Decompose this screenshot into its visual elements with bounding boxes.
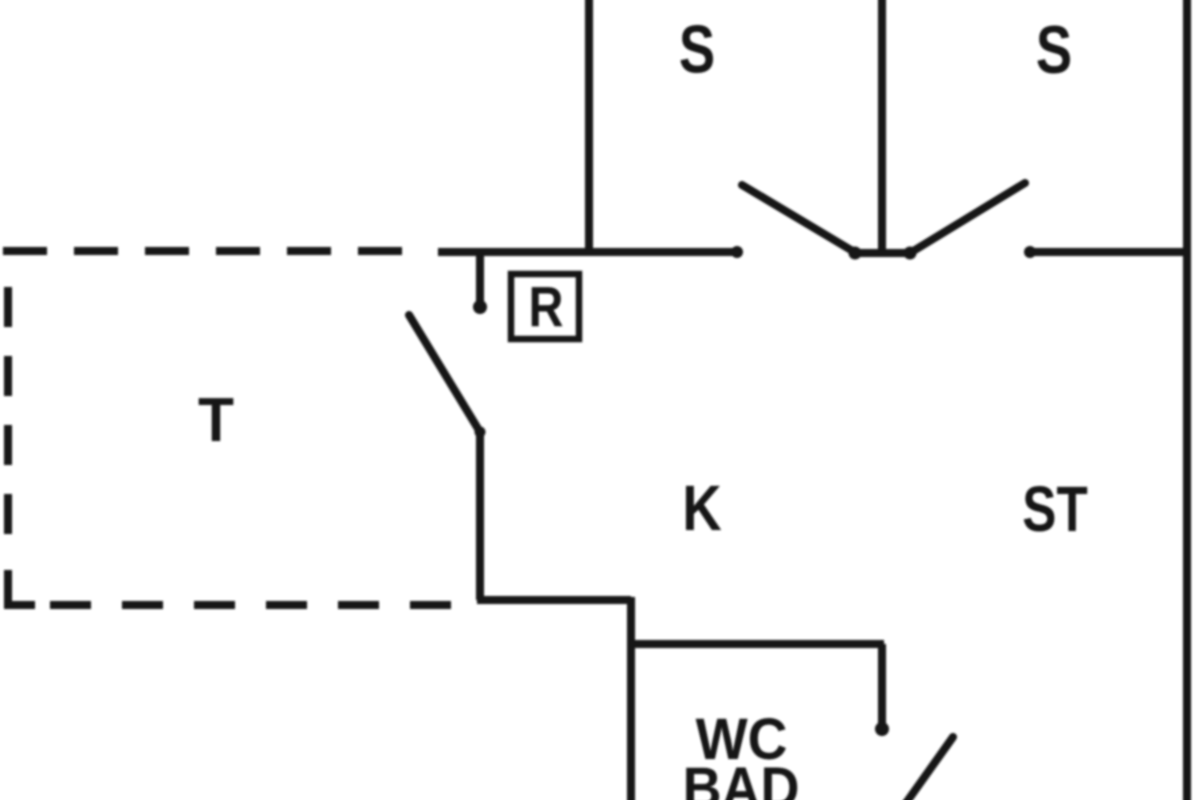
svg-text:R: R	[529, 276, 564, 340]
svg-text:BAD: BAD	[683, 755, 800, 800]
svg-text:K: K	[682, 472, 721, 544]
svg-text:S: S	[679, 12, 715, 88]
svg-text:ST: ST	[1022, 475, 1087, 546]
svg-text:T: T	[198, 385, 234, 455]
svg-text:S: S	[1036, 12, 1072, 88]
